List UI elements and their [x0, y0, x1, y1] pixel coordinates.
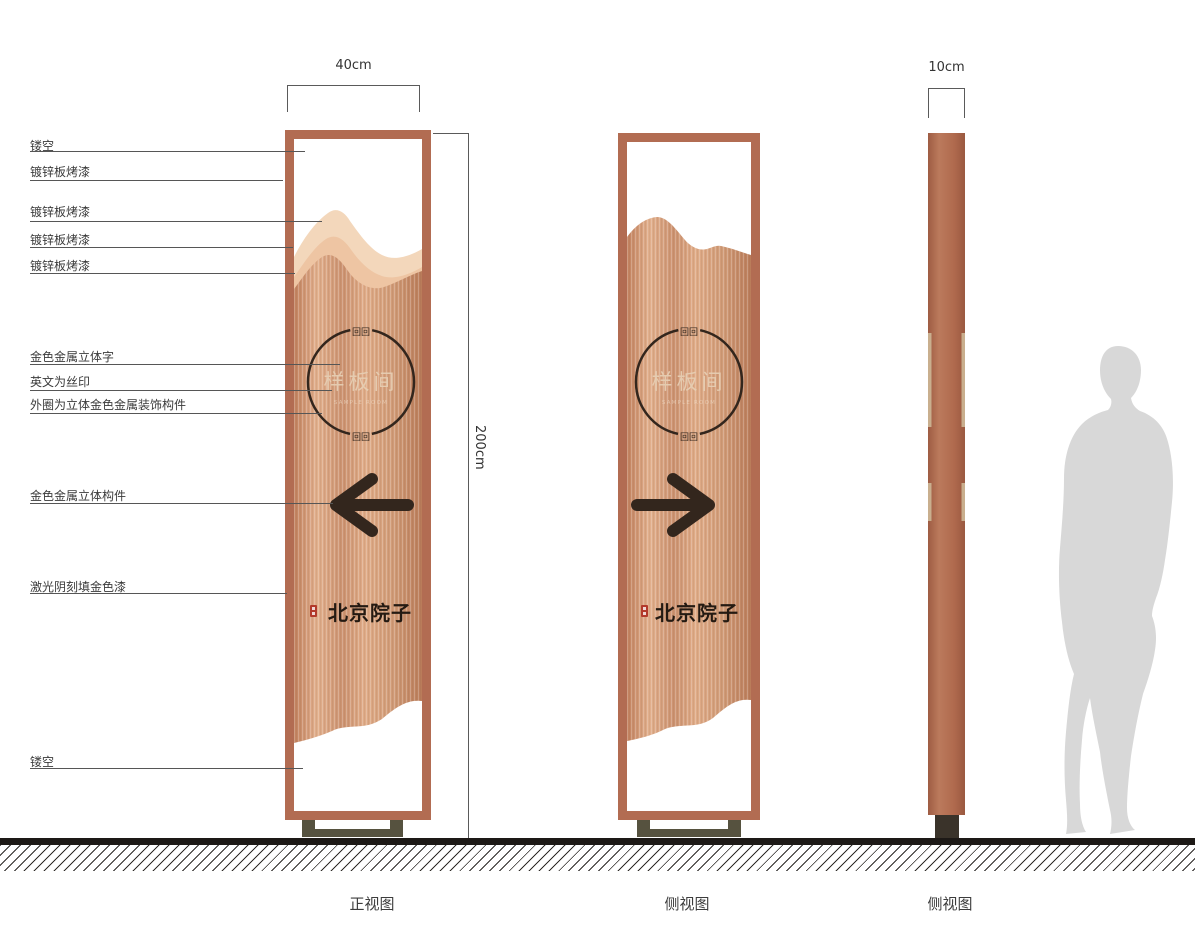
ring-fret-ornament-bottom: 回回	[352, 432, 370, 443]
leader-line	[30, 221, 322, 222]
ring-fret-ornament-bottom: 回回	[680, 432, 698, 443]
callout-label: 激光阴刻填金色漆	[30, 578, 126, 595]
ground-line	[0, 838, 1195, 845]
callout-label: 外圈为立体金色金属装饰构件	[30, 396, 186, 413]
brushed-texture-overlay	[627, 217, 751, 741]
callout-label: 金色金属立体字	[30, 348, 114, 365]
dimension-height-line	[468, 133, 469, 838]
profile-base	[935, 815, 959, 838]
sign-front-view: 回回 回回 样板间 SAMPLE ROOM 北京院子	[285, 130, 431, 820]
seal-mark	[312, 607, 315, 610]
sign-side-view: 回回 回回 样板间 SAMPLE ROOM 北京院子	[618, 133, 760, 820]
callout-label: 金色金属立体构件	[30, 487, 126, 504]
human-scale-silhouette	[1042, 342, 1182, 839]
seal-mark	[312, 612, 315, 615]
seal-stamp-icon	[310, 605, 317, 617]
dimension-side-width: 10cm	[918, 60, 975, 75]
view-title-side2: 侧视图	[902, 893, 998, 914]
seal-mark	[643, 612, 646, 615]
profile-protrusion-ring	[962, 333, 966, 427]
profile-protrusion-arrow	[928, 483, 932, 521]
callout-label: 镀锌板烤漆	[30, 203, 90, 220]
room-name-text: 样板间	[324, 370, 399, 394]
callout-label: 镂空	[30, 137, 54, 154]
leader-line	[30, 768, 303, 769]
view-title-front: 正视图	[324, 893, 420, 914]
leader-line	[30, 180, 283, 181]
ring-fret-ornament-top: 回回	[352, 327, 370, 338]
dimension-bracket-front	[287, 85, 420, 112]
sign-profile-view	[928, 133, 965, 838]
callout-label: 镀锌板烤漆	[30, 163, 90, 180]
profile-protrusion-arrow	[962, 483, 966, 521]
leader-line	[30, 413, 322, 414]
room-name-text: 样板间	[652, 370, 727, 394]
drawing-canvas: 回回 回回 样板间 SAMPLE ROOM 北京院子	[0, 0, 1195, 927]
callout-label: 镀锌板烤漆	[30, 231, 90, 248]
room-name-english-text: SAMPLE ROOM	[334, 400, 388, 406]
room-name-english-text: SAMPLE ROOM	[662, 400, 716, 406]
ring-fret-ornament-top: 回回	[680, 327, 698, 338]
ground-hatch	[0, 845, 1195, 871]
view-title-side1: 侧视图	[639, 893, 735, 914]
leader-line	[30, 390, 332, 391]
brand-calligraphy-text: 北京院子	[328, 601, 412, 625]
dimension-extension-line	[433, 133, 468, 134]
callout-label: 英文为丝印	[30, 373, 90, 390]
sign-front-base	[302, 820, 403, 837]
dimension-front-width: 40cm	[287, 58, 420, 73]
callout-label: 镂空	[30, 753, 54, 770]
callout-label: 镀锌板烤漆	[30, 257, 90, 274]
profile-protrusion-ring	[928, 333, 932, 427]
sign-side-base	[637, 820, 741, 837]
brand-calligraphy-text: 北京院子	[655, 601, 739, 625]
dimension-bracket-side	[928, 88, 965, 118]
profile-panel	[928, 133, 965, 815]
seal-stamp-icon	[641, 605, 648, 617]
leader-line	[30, 151, 305, 152]
dimension-height: 200cm	[472, 425, 487, 470]
seal-mark	[643, 607, 646, 610]
